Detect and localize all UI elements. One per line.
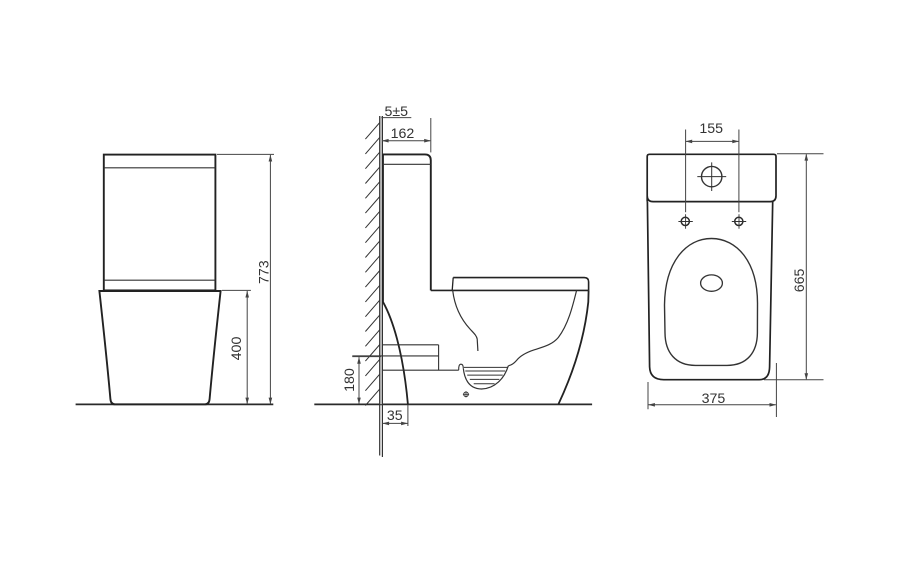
svg-text:162: 162 (391, 126, 415, 142)
svg-text:375: 375 (702, 391, 726, 407)
svg-text:155: 155 (699, 121, 723, 137)
svg-text:400: 400 (229, 337, 245, 361)
svg-text:35: 35 (387, 408, 403, 424)
svg-text:180: 180 (342, 368, 358, 392)
svg-text:773: 773 (256, 260, 272, 284)
svg-text:665: 665 (792, 268, 808, 292)
